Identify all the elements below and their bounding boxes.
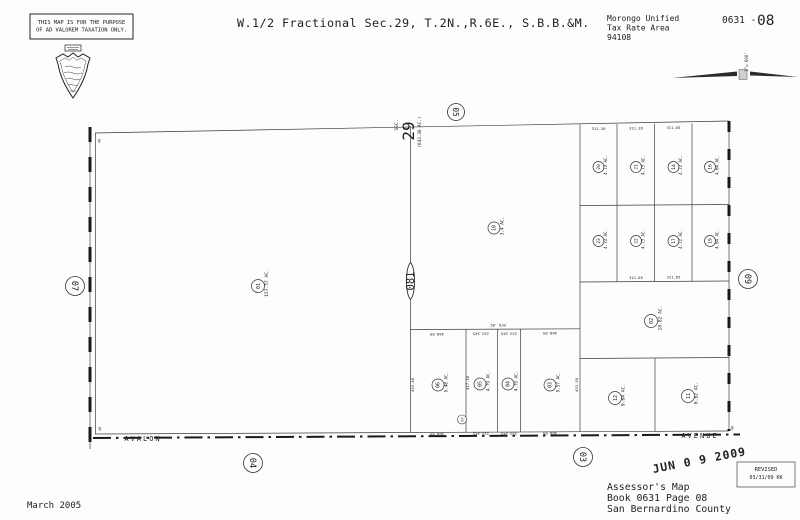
dim-label: 233.245 [473,432,489,437]
disclaimer-line2: OF AD VALOREM TAXATION ONLY. [36,28,127,34]
revised-date: 03/31/09 KK [749,475,782,481]
page-ref-number: 04 [247,458,257,468]
tax-rate-area-block: Morongo Unified Tax Rate Area 94108 [607,14,679,42]
scale-bar: 1"= 600' [672,52,798,79]
parcel-number: 17 [671,238,677,244]
parcel-number: 02 [649,318,655,324]
parcel-number: 21 [634,164,640,170]
parcel-number: 10 [492,225,498,231]
parcel-large-east: 02 18.82 AC. [645,306,664,331]
parcel-acreage: 4.64 AC. [715,155,720,175]
assessor-map-canvas: THIS MAP IS FOR THE PURPOSE OF AD VALORE… [0,0,800,520]
parcel-acreage: 4.73 AC. [641,229,646,249]
parcel-boundary-line [411,329,581,330]
dim-label: 233.245 [501,432,517,437]
parcel-number: 22 [634,238,640,244]
assessor-line1: Assessor's Map [607,482,690,493]
parcel-acreage: 4.73 AC. [641,155,646,175]
assessor-block: Assessor's Map Book 0631 Page 08 San Ber… [607,482,731,515]
parcel-acreage: 4.73 AC. [603,229,608,249]
parcel-strip-row1: 20 4.73 AC. 21 4.73 AC. 14 4.72 AC. 16 4… [593,155,720,175]
page-ref-number: 09 [742,274,752,284]
dim-label: 311.65 [629,275,643,280]
road-name-avalon: AVALON [124,435,161,443]
parcel-acreage: 4.64 AC. [715,229,720,249]
section-number: 29 [399,121,418,140]
parcel-boundary-line [580,205,729,206]
assessor-line3: San Bernardino County [607,504,731,515]
section-label: SEC. 29 (643.30 AC.) [394,116,423,147]
corner-tick: 40 [98,427,102,431]
dim-label: 468.99 [429,432,443,437]
parcel-number: 05 [478,381,484,387]
parcel-boundary-line [580,281,729,282]
parcel-number: 12 [613,395,619,401]
dim-label: 50' R/W [490,324,506,328]
page-ref-bottom-left: 04 [244,454,263,473]
parcel-acreage: 9.57 AC. [556,372,562,393]
parcel-acreage: 4.79 AC. [514,371,520,392]
parcel-acreage: 9.48 AC. [444,372,450,393]
page-ref-right: 09 [739,270,758,289]
tax-rate-area-label: Tax Rate Area [607,24,670,33]
revised-label: REVISED [755,467,778,473]
map-date: March 2005 [27,501,81,511]
page-number: 08 [757,13,774,29]
section-acreage: (643.30 AC.) [417,116,423,147]
page-ref-number: 07 [69,281,79,291]
parcel-acreage: 4.73 AC. [603,155,608,175]
dim-label: 233.245 [473,332,489,337]
parcel-south-east: 12 9.64 AC. 11 8.62 AC. [609,382,700,406]
disclaimer-line1: THIS MAP IS FOR THE PURPOSE [38,20,126,26]
parcel-strip-row2: 23 4.73 AC. 22 4.73 AC. 17 4.72 AC. 19 4… [593,229,720,249]
parcel-number: 14 [671,164,677,170]
road-name-avenue: AVENUE [681,432,718,440]
parcel-acreage: 4.72 AC. [678,229,683,249]
page-ref-bottom-right: 03 [574,448,593,467]
parcel-number: 03 [548,382,554,388]
parcel-center: 10 3.4 AC. [488,217,506,236]
dim-label: 311.26 [629,126,643,131]
parcel-west: 01 157.57 AC. [252,269,271,297]
page-ref-top: 05 [448,104,465,121]
parcel-acreage: 157.57 AC. [264,269,270,297]
corner-tick: 40 [731,426,735,430]
parcel-number: 06 [436,382,442,388]
parcel-number: 01 [256,283,262,289]
tax-rate-area-code: 94108 [607,33,631,42]
parcel-number: 07 [460,417,464,421]
assessor-line2: Book 0631 Page 08 [607,493,707,504]
south-road-dashdot [93,435,740,439]
parcel-acreage: 9.64 AC. [621,384,627,406]
disclaimer-box: THIS MAP IS FOR THE PURPOSE OF AD VALORE… [30,14,133,39]
parcel-acreage: 4.72 AC. [678,155,683,175]
scale-label: 1"= 600' [744,52,749,71]
map-title: W.1/2 Fractional Sec.29, T.2N.,R.6E., S.… [237,16,590,30]
dim-label: 433.38 [410,377,415,391]
parcel-number: 23 [596,238,602,244]
parcel-acreage: 3.4 AC. [500,217,506,236]
dim-label: 311.65 [667,125,681,130]
page-ref-number: 03 [577,452,587,462]
district-name: Morongo Unified [607,14,679,23]
parcel-south-mid: 06 9.48 AC. 05 4.79 AC. 04 4.79 AC. 03 9… [432,371,562,424]
dim-label: 311.26 [592,126,606,131]
parcel-acreage: 18.82 AC. [658,306,664,331]
block-oval: 081 [405,263,417,300]
parcel-acreage: 4.79 AC. [486,371,492,392]
dim-label: 468.99 [542,331,556,336]
page-ref-left: 07 [66,277,85,296]
dim-label: 468.99 [429,332,443,337]
assessor-map-page: THIS MAP IS FOR THE PURPOSE OF AD VALORE… [0,0,800,520]
dim-label: 311.65 [667,275,681,280]
parcel-acreage: 8.62 AC. [694,382,700,404]
dim-label: 468.99 [542,431,556,436]
county-seal-icon [56,45,90,98]
block-oval-number: 081 [405,272,417,291]
parcel-number: 04 [506,381,512,387]
dim-label: 433.38 [574,377,579,391]
south-parcel-line [95,431,729,434]
parcel-boundary-line [580,358,729,359]
book-page-number: 0631 - 08 [722,13,774,29]
book-prefix: 0631 - [722,15,756,26]
dim-label: 233.245 [501,332,517,337]
page-ref-number: 05 [451,107,460,117]
parcel-number: 20 [596,164,602,170]
parcel-number: 11 [686,393,692,399]
parcel-number: 16 [708,164,714,170]
revised-box: REVISED 03/31/09 KK [737,462,795,487]
corner-tick: 40 [98,139,102,143]
dim-label: 417.38 [465,375,470,389]
parcel-number: 19 [708,238,714,244]
date-stamp: JUN 0 9 2009 [651,444,747,476]
